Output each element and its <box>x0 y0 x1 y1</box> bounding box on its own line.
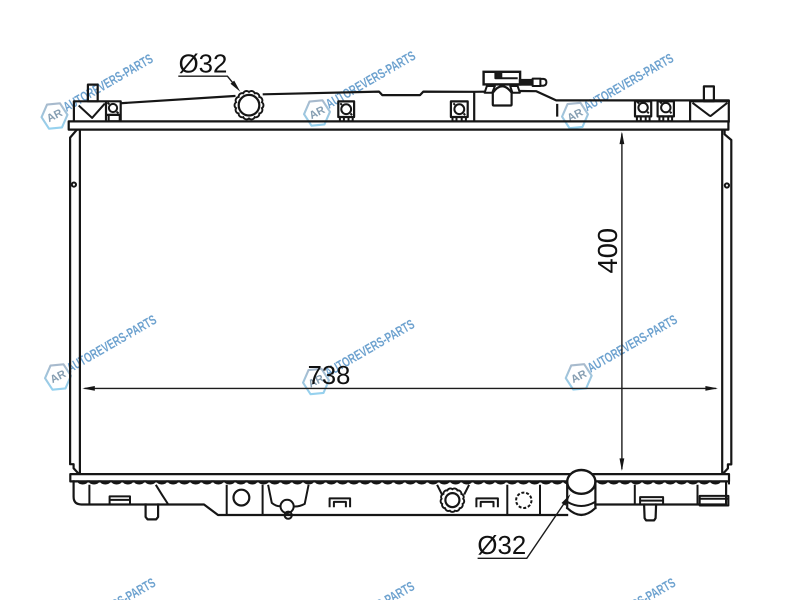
svg-text:738: 738 <box>308 362 351 390</box>
svg-text:Ø32: Ø32 <box>179 50 228 78</box>
svg-text:400: 400 <box>592 228 623 274</box>
svg-text:Ø32: Ø32 <box>477 532 526 560</box>
